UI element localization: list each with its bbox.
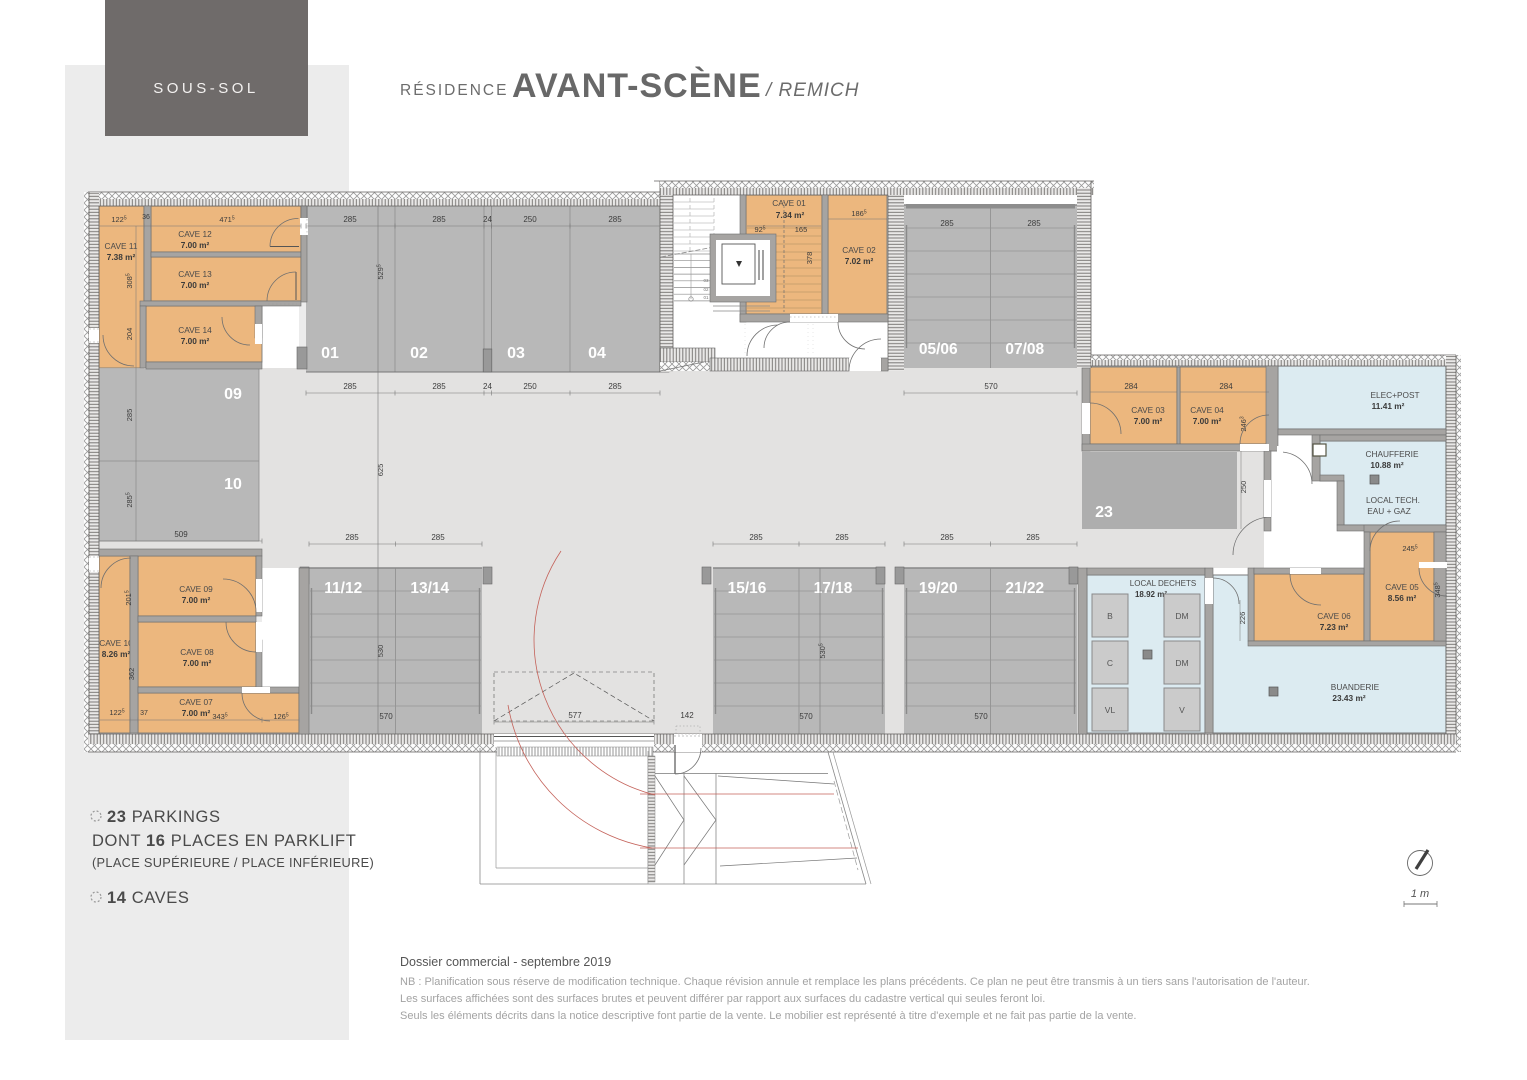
- svg-text:142: 142: [680, 711, 694, 720]
- svg-text:17/18: 17/18: [814, 580, 853, 597]
- svg-text:CAVE 12: CAVE 12: [178, 229, 212, 239]
- svg-text:NB : Planification sous réserv: NB : Planification sous réserve de modif…: [400, 976, 1310, 988]
- svg-text:CAVE 11: CAVE 11: [105, 241, 138, 251]
- svg-text:15/16: 15/16: [728, 580, 767, 597]
- svg-text:CHAUFFERIE: CHAUFFERIE: [1365, 449, 1418, 459]
- svg-text:285: 285: [345, 533, 359, 542]
- svg-text:285: 285: [432, 382, 446, 391]
- svg-text:7.00 m²: 7.00 m²: [183, 658, 212, 668]
- svg-text:570: 570: [974, 712, 988, 721]
- svg-text:21/22: 21/22: [1005, 580, 1044, 597]
- svg-text:509: 509: [174, 530, 188, 539]
- svg-text:07/08: 07/08: [1005, 341, 1044, 358]
- svg-text:23: 23: [1095, 504, 1113, 521]
- svg-text:CAVE 05: CAVE 05: [1385, 582, 1419, 592]
- svg-text:Seuls les éléments décrits dan: Seuls les éléments décrits dans la notic…: [400, 1010, 1136, 1022]
- svg-text:7.00 m²: 7.00 m²: [1134, 416, 1163, 426]
- svg-text:CAVE 04: CAVE 04: [1190, 405, 1224, 415]
- svg-text:CAVE 08: CAVE 08: [180, 647, 214, 657]
- svg-text:284: 284: [1219, 382, 1233, 391]
- svg-text:LOCAL DECHETS: LOCAL DECHETS: [1130, 579, 1196, 588]
- svg-text:CAVE 02: CAVE 02: [842, 245, 876, 255]
- svg-text:24: 24: [483, 215, 492, 224]
- svg-text:14 CAVES: 14 CAVES: [107, 889, 189, 907]
- svg-text:285: 285: [1027, 219, 1041, 228]
- svg-text:285: 285: [835, 533, 849, 542]
- svg-text:01: 01: [703, 295, 709, 300]
- svg-text:AVANT-SCÈNE: AVANT-SCÈNE: [512, 67, 762, 105]
- svg-text:226: 226: [1238, 612, 1247, 625]
- svg-text:7.02 m²: 7.02 m²: [845, 256, 874, 266]
- svg-text:Dossier commercial - septembre: Dossier commercial - septembre 2019: [400, 955, 611, 969]
- svg-text:CAVE 13: CAVE 13: [178, 269, 212, 279]
- svg-text:577: 577: [568, 711, 582, 720]
- svg-text:570: 570: [799, 712, 813, 721]
- svg-text:V: V: [1179, 705, 1185, 715]
- svg-text:7.23 m²: 7.23 m²: [1320, 622, 1349, 632]
- svg-text:204: 204: [125, 328, 134, 341]
- svg-text:7.38 m²: 7.38 m²: [107, 252, 136, 262]
- svg-text:09: 09: [224, 386, 242, 403]
- svg-text:285: 285: [608, 215, 622, 224]
- svg-text:285: 285: [343, 382, 357, 391]
- svg-text:7.00 m²: 7.00 m²: [181, 240, 210, 250]
- svg-text:03: 03: [703, 278, 709, 283]
- svg-text:CAVE 10: CAVE 10: [99, 638, 133, 648]
- svg-text:7.34 m²: 7.34 m²: [776, 210, 805, 220]
- svg-text:04: 04: [588, 345, 606, 362]
- svg-text:03: 03: [507, 345, 525, 362]
- svg-text:/ REMICH: / REMICH: [764, 80, 860, 101]
- svg-text:23.43 m²: 23.43 m²: [1332, 693, 1365, 703]
- svg-text:BUANDERIE: BUANDERIE: [1331, 682, 1380, 692]
- svg-text:CAVE 09: CAVE 09: [179, 584, 213, 594]
- svg-text:7.00 m²: 7.00 m²: [1193, 416, 1222, 426]
- svg-text:285: 285: [343, 215, 357, 224]
- svg-text:CAVE 03: CAVE 03: [1131, 405, 1165, 415]
- svg-text:285: 285: [1026, 533, 1040, 542]
- svg-text:250: 250: [523, 382, 537, 391]
- svg-text:285: 285: [940, 533, 954, 542]
- svg-text:24: 24: [483, 382, 492, 391]
- svg-text:02: 02: [703, 287, 709, 292]
- svg-text:285: 285: [431, 533, 445, 542]
- svg-text:285: 285: [608, 382, 622, 391]
- svg-text:165: 165: [795, 225, 808, 234]
- svg-text:13/14: 13/14: [410, 580, 449, 597]
- svg-text:285: 285: [749, 533, 763, 542]
- svg-text:19/20: 19/20: [919, 580, 958, 597]
- svg-text:DM: DM: [1175, 658, 1188, 668]
- svg-text:8.56 m²: 8.56 m²: [1388, 593, 1417, 603]
- svg-text:7.00 m²: 7.00 m²: [182, 708, 211, 718]
- svg-text:(PLACE SUPÉRIEURE / PLACE INFÉ: (PLACE SUPÉRIEURE / PLACE INFÉRIEURE): [92, 855, 374, 870]
- svg-text:02: 02: [410, 345, 428, 362]
- svg-text:ELEC+POST: ELEC+POST: [1370, 390, 1419, 400]
- svg-text:DONT 16 PLACES EN PARKLIFT: DONT 16 PLACES EN PARKLIFT: [92, 832, 356, 850]
- svg-text:SOUS-SOL: SOUS-SOL: [153, 80, 259, 97]
- svg-text:CAVE 14: CAVE 14: [178, 325, 212, 335]
- svg-text:CAVE 01: CAVE 01: [772, 198, 806, 208]
- svg-text:1 m: 1 m: [1411, 888, 1429, 900]
- svg-text:DM: DM: [1175, 611, 1188, 621]
- svg-text:7.00 m²: 7.00 m²: [181, 336, 210, 346]
- svg-text:B: B: [1107, 611, 1113, 621]
- svg-text:CAVE 06: CAVE 06: [1317, 611, 1351, 621]
- svg-text:10.88 m²: 10.88 m²: [1370, 460, 1403, 470]
- svg-text:625: 625: [376, 464, 385, 477]
- svg-text:362: 362: [127, 668, 136, 681]
- svg-text:RÉSIDENCE: RÉSIDENCE: [400, 82, 508, 99]
- svg-text:37: 37: [140, 710, 148, 717]
- svg-text:18.92 m²: 18.92 m²: [1135, 590, 1167, 599]
- svg-text:285: 285: [940, 219, 954, 228]
- svg-text:LOCAL TECH.: LOCAL TECH.: [1366, 495, 1420, 505]
- svg-text:36: 36: [142, 214, 150, 221]
- svg-text:11/12: 11/12: [324, 580, 362, 597]
- svg-text:7.00 m²: 7.00 m²: [182, 595, 211, 605]
- svg-text:250: 250: [523, 215, 537, 224]
- svg-text:Les surfaces affichées sont de: Les surfaces affichées sont des surfaces…: [400, 993, 1045, 1005]
- svg-text:378: 378: [805, 252, 814, 265]
- svg-text:CAVE 07: CAVE 07: [179, 697, 213, 707]
- svg-text:530: 530: [376, 645, 385, 658]
- svg-text:570: 570: [984, 382, 998, 391]
- svg-text:EAU + GAZ: EAU + GAZ: [1367, 506, 1411, 516]
- svg-text:11.41 m²: 11.41 m²: [1372, 401, 1405, 411]
- svg-text:VL: VL: [1105, 705, 1116, 715]
- svg-text:01: 01: [321, 345, 339, 362]
- svg-text:250: 250: [1239, 481, 1248, 494]
- svg-text:8.26 m²: 8.26 m²: [102, 649, 131, 659]
- svg-text:284: 284: [1124, 382, 1138, 391]
- svg-text:C: C: [1107, 658, 1113, 668]
- svg-text:285: 285: [125, 409, 134, 422]
- svg-text:285: 285: [432, 215, 446, 224]
- svg-text:570: 570: [379, 712, 393, 721]
- svg-text:05/06: 05/06: [919, 341, 958, 358]
- svg-text:10: 10: [224, 476, 242, 493]
- svg-text:7.00 m²: 7.00 m²: [181, 280, 210, 290]
- svg-text:23 PARKINGS: 23 PARKINGS: [107, 808, 221, 826]
